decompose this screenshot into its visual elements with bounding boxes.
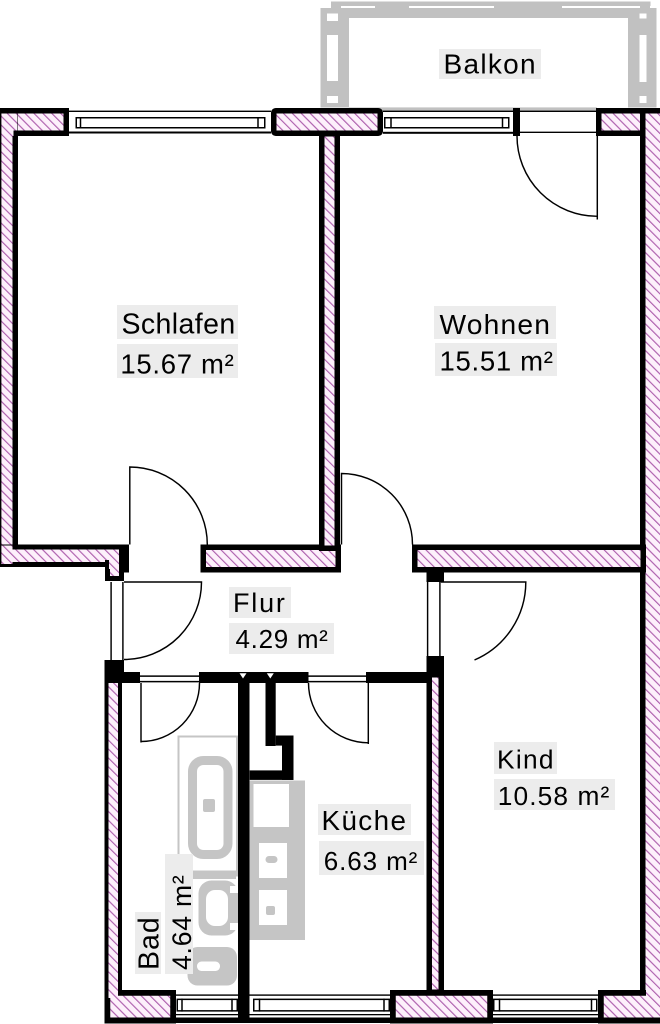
svg-text:10.58 m²: 10.58 m² xyxy=(498,781,611,811)
svg-text:Wohnen: Wohnen xyxy=(440,308,552,340)
svg-text:6.63 m²: 6.63 m² xyxy=(324,846,418,876)
svg-text:Flur: Flur xyxy=(233,588,287,618)
svg-text:Küche: Küche xyxy=(322,805,408,836)
svg-text:4.64 m²: 4.64 m² xyxy=(167,875,197,970)
svg-text:15.51 m²: 15.51 m² xyxy=(440,345,554,376)
svg-text:Schlafen: Schlafen xyxy=(122,309,236,341)
svg-text:15.67 m²: 15.67 m² xyxy=(120,348,234,379)
svg-text:Kind: Kind xyxy=(497,745,555,775)
svg-text:4.29 m²: 4.29 m² xyxy=(236,624,329,654)
svg-text:Balkon: Balkon xyxy=(444,49,537,80)
svg-text:Bad: Bad xyxy=(133,916,165,970)
